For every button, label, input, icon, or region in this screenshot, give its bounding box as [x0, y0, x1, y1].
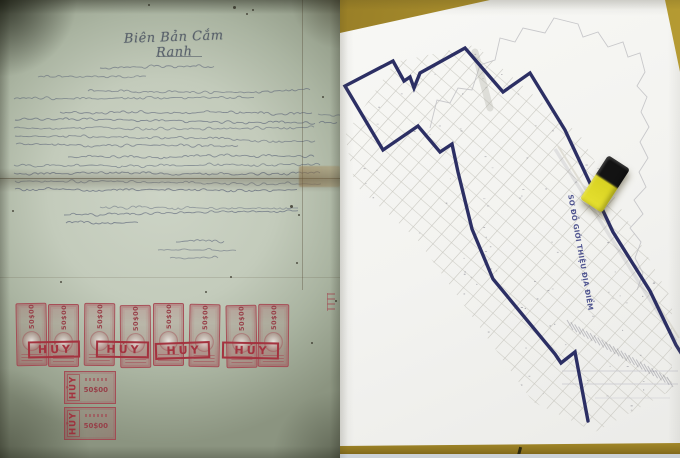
map-paper-sheet: SƠ ĐỒ GIỚI THIỆU ĐỊA ĐIỂM — [340, 0, 680, 458]
handwriting-text — [0, 0, 340, 458]
cadastral-map — [340, 0, 680, 458]
stamp-denomination: 50$00 — [270, 308, 278, 330]
speck — [230, 276, 232, 278]
revenue-stamp: 50$00 — [120, 305, 152, 368]
stamp-fragment — [327, 293, 335, 311]
fold-crease-vertical — [302, 0, 303, 290]
speck — [322, 96, 324, 98]
cancel-stamp-rotated: HỦY — [67, 410, 80, 437]
speck — [252, 9, 254, 11]
fold-crease-horizontal — [0, 178, 340, 179]
stamp-fineprint — [85, 414, 107, 417]
table-edge-highlight — [340, 454, 680, 458]
tape-stain — [299, 166, 340, 187]
speck — [335, 300, 337, 302]
stamp-denomination: 50$00 — [237, 309, 245, 331]
photo-collage: Biên Bản Cắm Ranh 50$00 50$00 50$00 50$0… — [0, 0, 680, 458]
stamp-denomination: 50$00 — [84, 422, 108, 430]
speck — [296, 262, 298, 264]
stamp-denomination: 50$00 — [60, 308, 68, 330]
speck — [298, 214, 300, 216]
revenue-stamp-horizontal: HỦY 50$00 — [64, 371, 116, 404]
fold-crease-horizontal-faint — [0, 277, 340, 278]
speck — [60, 281, 62, 283]
cancel-stamp: HỦY — [96, 341, 149, 359]
speck — [290, 205, 293, 208]
stamp-fineprint — [85, 378, 107, 381]
speck — [12, 210, 14, 212]
document-photo-panel: Biên Bản Cắm Ranh 50$00 50$00 50$00 50$0… — [0, 0, 340, 458]
cancel-stamp-rotated: HỦY — [67, 374, 80, 401]
map-photo-panel: SƠ ĐỒ GIỚI THIỆU ĐỊA ĐIỂM — [340, 0, 680, 458]
stamp-denomination: 50$00 — [27, 307, 35, 329]
title-underline — [158, 56, 202, 57]
stamp-denomination: 50$00 — [96, 307, 104, 329]
cancel-stamp: HỦY — [222, 342, 279, 360]
stamp-denomination: 50$00 — [165, 307, 173, 329]
stamp-denomination: 50$00 — [84, 386, 108, 394]
cancel-stamp: HỦY — [155, 341, 211, 360]
speck — [246, 13, 248, 15]
speck — [205, 291, 207, 293]
cancel-stamp: HỦY — [28, 341, 80, 359]
speck — [148, 4, 150, 6]
document-title: Biên Bản Cắm Ranh — [104, 28, 245, 63]
speck — [311, 342, 313, 344]
stamp-denomination: 50$00 — [201, 308, 209, 330]
revenue-stamp-horizontal: HỦY 50$00 — [64, 407, 116, 440]
stamp-denomination: 50$00 — [131, 309, 139, 331]
speck — [233, 6, 236, 9]
